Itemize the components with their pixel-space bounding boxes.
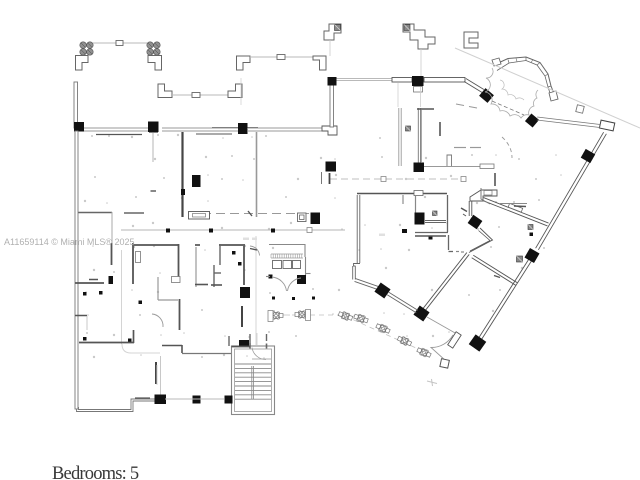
svg-text:A11659114 © Miami MLS® 2025: A11659114 © Miami MLS® 2025: [4, 237, 135, 247]
svg-text:Bedrooms: 5: Bedrooms: 5: [52, 464, 139, 480]
